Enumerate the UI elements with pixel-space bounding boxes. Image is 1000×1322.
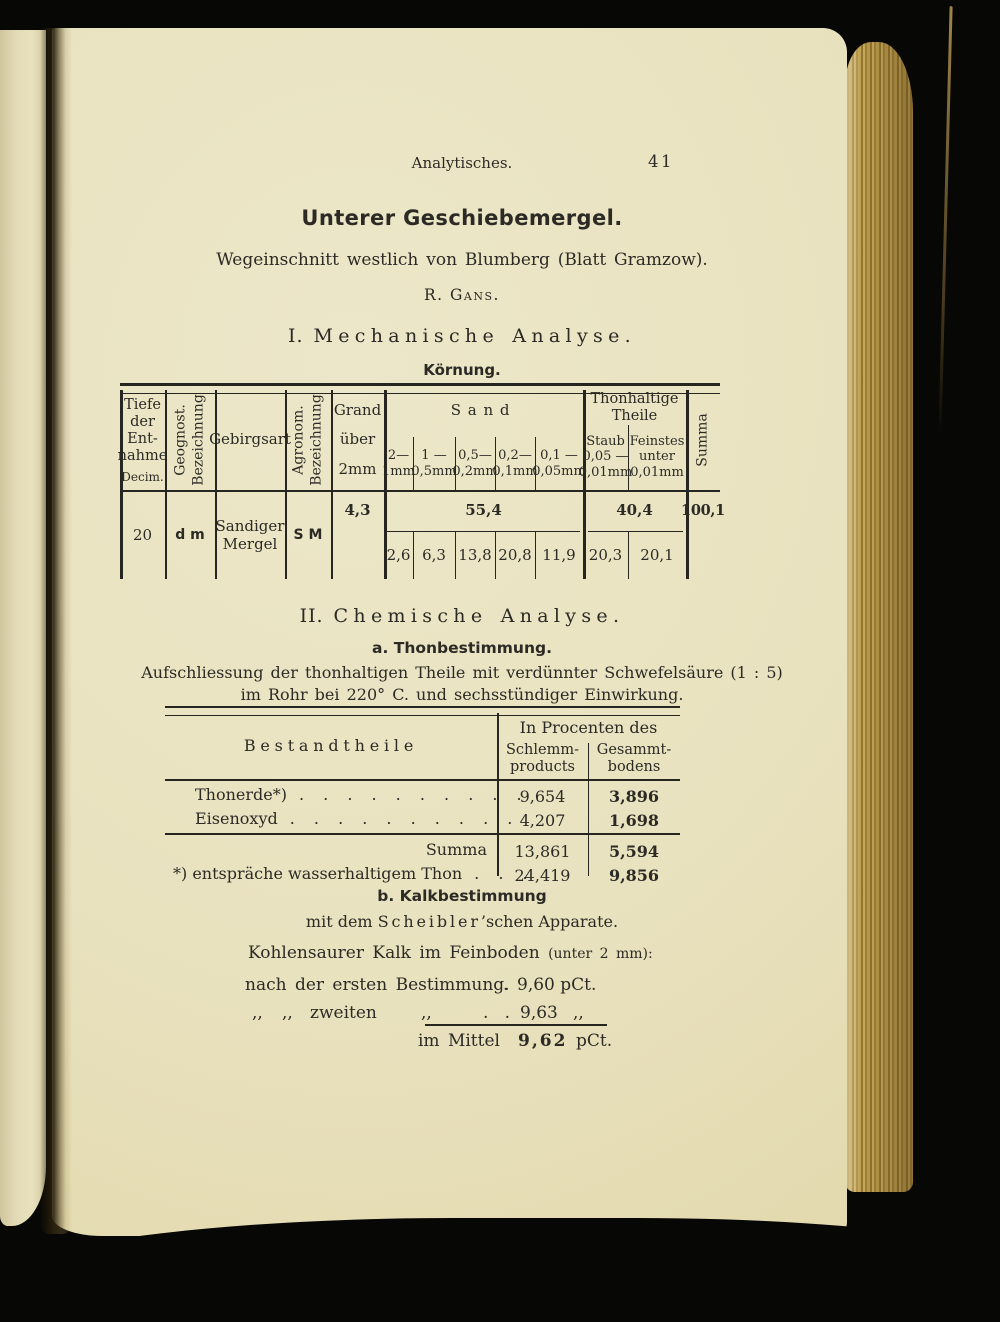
dot-leader: . — [503, 975, 508, 995]
cell-gebirgsart: Sandiger Mergel — [215, 492, 285, 579]
apparatus-pre: mit dem — [306, 912, 373, 931]
document-title: Unterer Geschiebemergel. — [122, 206, 802, 230]
header-summa: Summa — [686, 390, 720, 490]
header-agronom-label: Agronom. Bezeichnung — [291, 394, 326, 486]
apparatus-name: Scheibler — [378, 912, 481, 931]
dot-leader: . . — [483, 1003, 510, 1023]
kalk-mean-unit: pCt. — [576, 1031, 612, 1051]
row-label-text: Eisenoxyd — [195, 809, 278, 828]
row-summa-gesammt: 5,594 — [588, 839, 680, 865]
kalkbestimmung-heading: b. Kalkbestimmung — [122, 887, 802, 905]
kalk-line-1: nach der ersten Bestimmung. . 9,60 pCt. — [245, 975, 665, 1001]
row-footnote-schlemm: 24,419 — [497, 863, 588, 889]
document-subtitle: Wegeinschnitt westlich von Blumberg (Bla… — [122, 250, 802, 270]
header-feinstes: Feinstes unter 0,01mm — [628, 427, 686, 487]
table1-sand-subtotal-rule — [387, 531, 580, 532]
row-eisenoxyd-gesammt: 1,698 — [588, 808, 680, 834]
row-label-text: *) entspräche wasserhaltigem Thon — [173, 864, 462, 883]
cell-sand-2: 6,3 — [413, 533, 455, 578]
cell-sand-1: 2,6 — [384, 533, 413, 578]
section1-subheading: Körnung. — [122, 361, 802, 379]
row-summa-label: Summa — [165, 840, 487, 859]
page-edge-stack — [845, 42, 913, 1192]
section2-title: Chemische Analyse. — [334, 605, 625, 627]
table1-thon-subtotal-rule — [588, 531, 683, 532]
cell-sand-4: 20,8 — [495, 533, 535, 578]
header-sand-group: Sand — [384, 393, 583, 429]
table2-header-rule — [165, 779, 680, 781]
header-sand-col-3: 0,5— 0,2mm — [455, 439, 495, 488]
header-gebirgsart: Gebirgsart — [215, 390, 285, 490]
cell-agronom: S M — [285, 492, 331, 579]
cell-sand-3: 13,8 — [455, 533, 495, 578]
chemical-analysis-table: Bestandtheile In Procenten des Schlemm- … — [165, 706, 680, 892]
section1-heading: I.Mechanische Analyse. — [122, 325, 802, 347]
author-name: R. Gans. — [122, 286, 802, 304]
page-number: 41 — [648, 152, 674, 171]
ditto-mark: ,, — [282, 1003, 293, 1023]
header-geognost: Geognost. Bezeichnung — [165, 390, 215, 490]
cell-thon-total: 40,4 — [583, 492, 686, 530]
section1-number: I. — [288, 325, 303, 347]
header-tiefe-unit: Decim. — [120, 467, 165, 487]
cell-tiefe: 20 — [120, 492, 165, 579]
dot-leader: . . . . . . . . . . — [290, 809, 520, 828]
header-agronom: Agronom. Bezeichnung — [285, 390, 331, 490]
ditto-mark: ,, — [421, 1003, 432, 1023]
cell-sand-5: 11,9 — [535, 533, 583, 578]
row-summa-schlemm: 13,861 — [497, 839, 588, 865]
header-thon-group: Thonhaltige Theile — [583, 392, 686, 424]
mechanical-analysis-table: Tiefe der Ent- nahme Decim. Geognost. Be… — [120, 383, 720, 582]
row-label-text: Thonerde*) — [195, 785, 287, 804]
kalk-mean-value: 9,62 — [518, 1031, 567, 1051]
book-page: Analytisches. 41 Unterer Geschiebemergel… — [52, 28, 847, 1236]
kalk-line1-value: 9,60 pCt. — [517, 975, 596, 995]
kalk-line1-label: nach der ersten Bestimmung. — [245, 975, 510, 995]
row-footnote-gesammt: 9,856 — [588, 863, 680, 889]
kalk-line2-value: 9,63 — [520, 1003, 558, 1023]
header-staub: Staub 0,05 — 0,01mm — [583, 427, 628, 487]
kalk-line-3: im Mittel 9,62 pCt. — [418, 1031, 698, 1057]
apparatus-line: mit dem Scheibler’schen Apparate. — [122, 912, 802, 931]
header-schlemm: Schlemm- products — [497, 740, 588, 778]
cell-sand-total: 55,4 — [384, 492, 583, 530]
ditto-mark: ,, — [252, 1003, 263, 1023]
header-grand: Grand über 2mm — [331, 393, 384, 487]
kalk-intro-line: Kohlensaurer Kalk im Feinboden (unter 2 … — [248, 943, 653, 963]
cell-feinstes: 20,1 — [628, 533, 686, 578]
header-bestandtheile: Bestandtheile — [165, 713, 497, 779]
header-sand-col-2: 1 — 0,5mm — [413, 439, 455, 488]
cover-crack-highlight — [938, 6, 952, 436]
kalk-line3-label: im Mittel — [418, 1031, 500, 1051]
header-gesammt: Gesammt- bodens — [588, 740, 680, 778]
thonbestimmung-paragraph: Aufschliessung der thonhaltigen Theile m… — [122, 662, 802, 706]
row-thonerde-schlemm: 9,654 — [497, 784, 588, 810]
book-gutter-shadow — [40, 28, 72, 1234]
row-eisenoxyd-schlemm: 4,207 — [497, 808, 588, 834]
mean-sum-rule — [425, 1024, 607, 1026]
ditto-mark: ,, — [573, 1003, 584, 1023]
cell-grand: 4,3 — [331, 492, 384, 530]
cell-staub: 20,3 — [583, 533, 628, 578]
header-sand-col-5: 0,1 — 0,05mm — [535, 439, 583, 488]
header-summa-label: Summa — [694, 413, 712, 467]
dot-leader: . . . . . . . . . . — [299, 785, 529, 804]
section2-number: II. — [300, 605, 324, 627]
header-procenten-group: In Procenten des — [497, 716, 680, 740]
kalk-intro-main: Kohlensaurer Kalk im Feinboden — [248, 943, 540, 963]
header-geognost-label: Geognost. Bezeichnung — [173, 394, 208, 486]
thonbestimmung-heading: a. Thonbestimmung. — [122, 639, 802, 657]
bottom-page-curve — [0, 1218, 1000, 1322]
cell-summa: 100,1 — [684, 492, 722, 530]
book-photo: { "page_header": { "running_title": "Ana… — [0, 0, 1000, 1270]
section1-title: Mechanische Analyse. — [313, 325, 636, 347]
section2-heading: II.Chemische Analyse. — [122, 605, 802, 627]
running-title: Analytisches. — [122, 154, 802, 172]
cell-geognost: d m — [165, 492, 215, 579]
header-sand-col-4: 0,2— 0,1mm — [495, 439, 535, 488]
header-tiefe: Tiefe der Ent- nahme — [120, 395, 165, 467]
row-footnote-label: *) entspräche wasserhaltigem Thon. . . — [173, 864, 535, 883]
kalk-intro-note: (unter 2 mm): — [548, 946, 653, 962]
row-thonerde-gesammt: 3,896 — [588, 784, 680, 810]
row-eisenoxyd-label: Eisenoxyd. . . . . . . . . . — [195, 809, 519, 828]
row-thonerde-label: Thonerde*). . . . . . . . . . — [195, 785, 529, 804]
apparatus-post: ’schen Apparate. — [481, 912, 618, 931]
kalk-line2-word: zweiten — [310, 1003, 377, 1023]
header-sand-col-1: 2— 1mm — [384, 439, 413, 488]
